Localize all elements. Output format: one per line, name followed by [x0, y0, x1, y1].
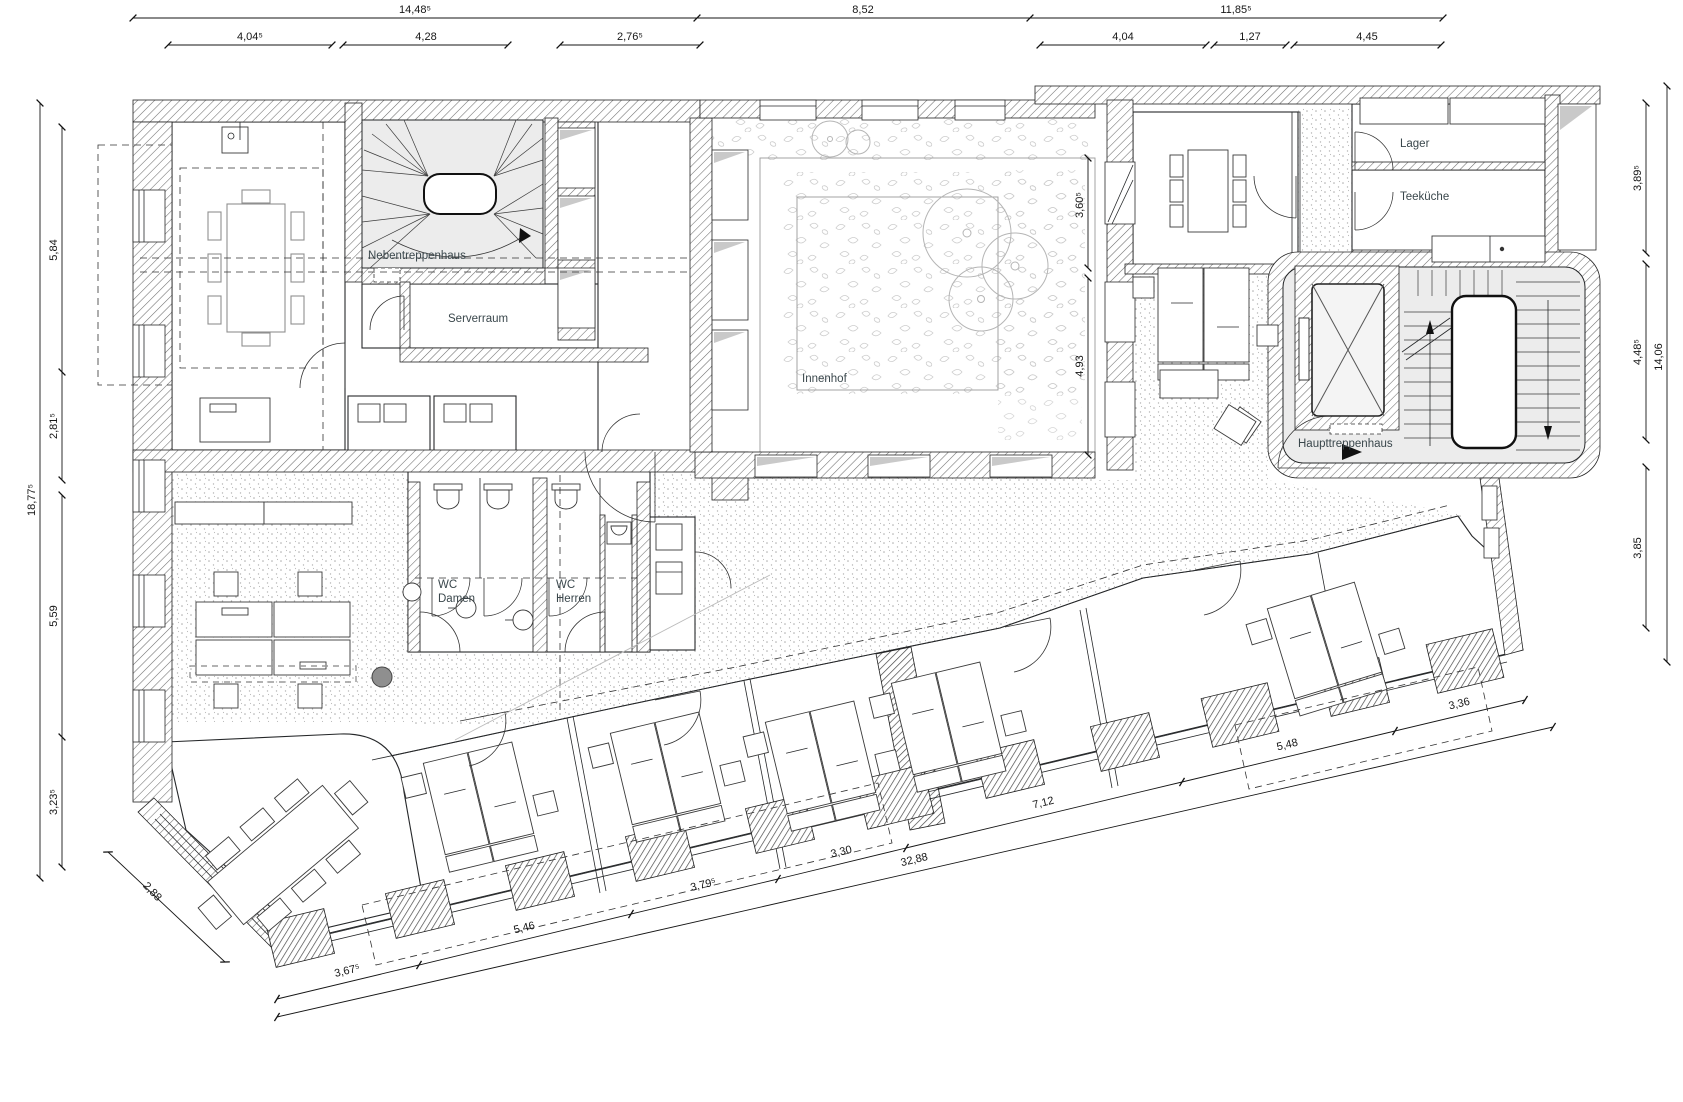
svg-text:WC: WC — [438, 579, 457, 591]
dim-label: 5,84 — [48, 239, 60, 260]
dim-label: 4,93 — [1074, 355, 1086, 376]
dim-label: 5,46 — [512, 920, 536, 937]
room-label-serverraum: Serverraum — [448, 313, 508, 325]
kitchen-counter — [1432, 236, 1545, 262]
dim-label: 3,85 — [1632, 537, 1644, 558]
floor-plan-page: Innenhof — [0, 0, 1683, 1102]
column — [372, 667, 392, 687]
dim-label: 4,45 — [1356, 31, 1377, 43]
dim-label: 2,76⁵ — [617, 31, 643, 43]
dim-label: 1,27 — [1239, 31, 1260, 43]
room-label-innenhof: Innenhof — [802, 373, 848, 385]
dim-label: 4,04⁵ — [237, 31, 263, 43]
room-hall — [598, 118, 692, 452]
dim-label: 3,79⁵ — [689, 876, 717, 894]
svg-text:Herren: Herren — [556, 593, 591, 605]
meeting-table-right — [1170, 150, 1246, 232]
dim-label: 14,48⁵ — [399, 4, 431, 16]
dim-label: 18,77⁵ — [26, 484, 38, 516]
urinal-icon — [607, 522, 631, 544]
svg-text:WC: WC — [556, 579, 575, 591]
dim-label: 2,81⁵ — [48, 413, 60, 439]
dim-label: 5,48 — [1275, 737, 1299, 754]
dim-label: 3,36 — [1447, 696, 1471, 713]
dim-label: 3,60⁵ — [1074, 192, 1086, 218]
floor-plan-drawing: Innenhof — [0, 0, 1683, 1102]
room-label-nebentreppenhaus: Nebentreppenhaus — [368, 250, 466, 262]
room-label-teekueche: Teeküche — [1400, 191, 1449, 203]
dim-label: 14,06 — [1653, 343, 1665, 371]
dim-label: 3,89⁵ — [1632, 165, 1644, 191]
room-label-lager: Lager — [1400, 138, 1430, 150]
dim-label: 4,04 — [1112, 31, 1133, 43]
dim-label: 8,52 — [852, 4, 873, 16]
sink-icon — [222, 122, 248, 153]
svg-text:Damen: Damen — [438, 593, 475, 605]
room-label-haupttreppenhaus: Haupttreppenhaus — [1298, 438, 1393, 450]
dim-label: 2,88 — [140, 880, 164, 904]
dim-label: 32,88 — [900, 851, 930, 869]
dim-label: 5,59 — [48, 605, 60, 626]
elevator-icon — [1295, 266, 1399, 434]
dim-label: 3,30 — [829, 844, 853, 861]
dim-label: 4,48⁵ — [1632, 339, 1644, 365]
dim-label: 4,28 — [415, 31, 436, 43]
dim-label: 3,23⁵ — [48, 789, 60, 815]
dim-label: 7,12 — [1031, 795, 1055, 812]
dim-label: 11,85⁵ — [1220, 4, 1251, 16]
courtyard: Innenhof — [705, 118, 1095, 455]
dim-label: 3,67⁵ — [333, 962, 361, 980]
